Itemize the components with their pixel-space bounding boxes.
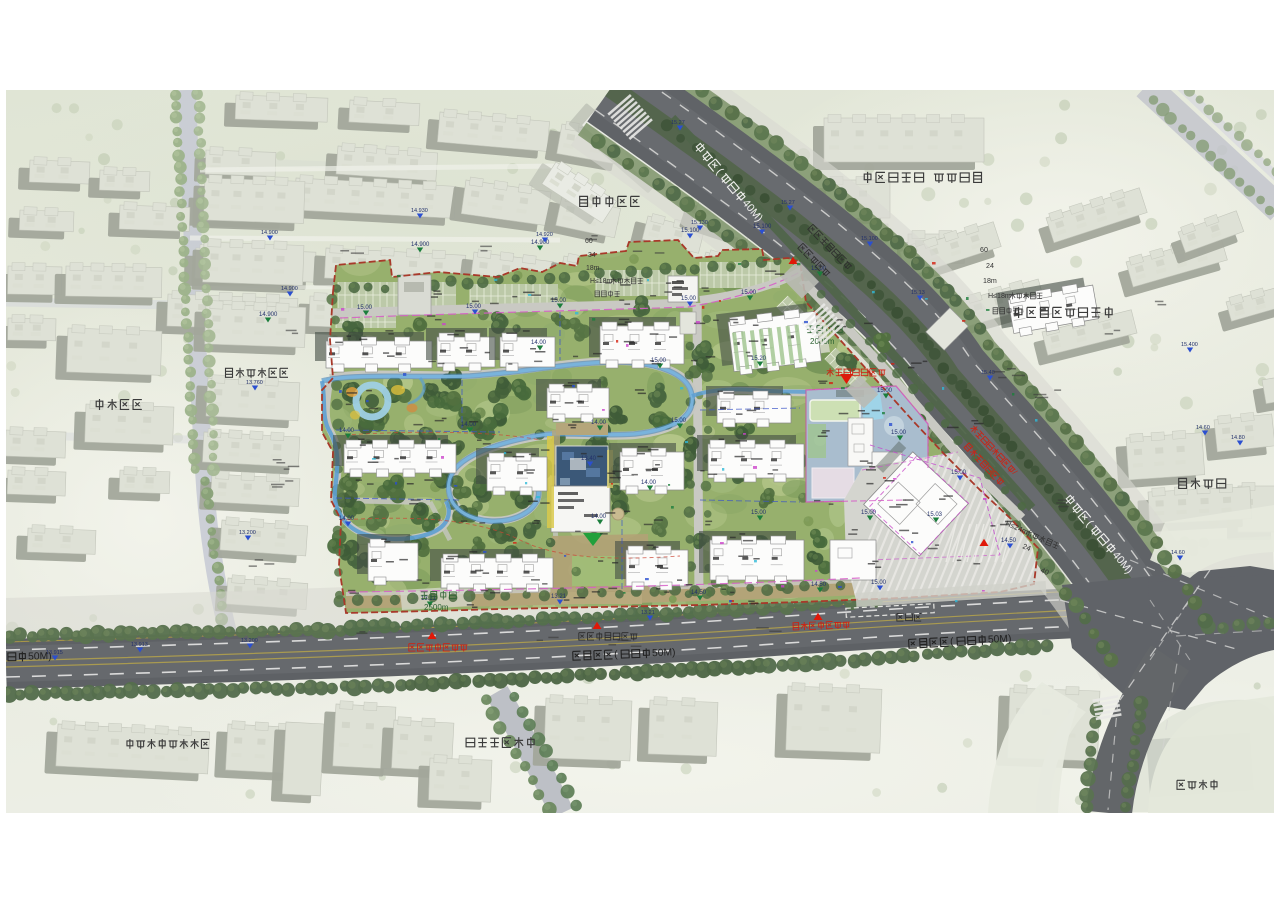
svg-text:24: 24 xyxy=(986,262,994,270)
svg-text:60: 60 xyxy=(585,238,593,245)
svg-text:15.00: 15.00 xyxy=(751,510,767,516)
svg-text:50M): 50M) xyxy=(652,647,676,659)
svg-text:14.900: 14.900 xyxy=(259,312,278,318)
svg-text:14.900: 14.900 xyxy=(281,286,298,292)
svg-text:14.900: 14.900 xyxy=(411,242,430,248)
svg-text:14.80: 14.80 xyxy=(1231,435,1245,441)
svg-text:15.100: 15.100 xyxy=(753,224,772,230)
svg-text:14.900: 14.900 xyxy=(531,240,550,246)
svg-text:15.27: 15.27 xyxy=(781,200,795,206)
svg-text:14.60: 14.60 xyxy=(1171,550,1185,556)
svg-text:H≤18m: H≤18m xyxy=(590,278,612,285)
svg-text:15.40: 15.40 xyxy=(981,370,995,376)
svg-text:15.00: 15.00 xyxy=(871,580,887,586)
svg-text:14.00: 14.00 xyxy=(641,480,657,486)
svg-text:14.00: 14.00 xyxy=(339,516,355,522)
svg-text:2500m: 2500m xyxy=(424,603,449,612)
svg-text:15.00: 15.00 xyxy=(891,430,907,436)
svg-text:50M): 50M) xyxy=(28,651,52,662)
svg-text:15.100: 15.100 xyxy=(681,228,700,234)
svg-text:15.00: 15.00 xyxy=(681,296,697,302)
svg-text:14.920: 14.920 xyxy=(536,232,553,238)
svg-text:13.760: 13.760 xyxy=(246,380,263,386)
svg-text:34: 34 xyxy=(588,252,596,259)
svg-text:13.40: 13.40 xyxy=(581,456,597,462)
svg-text:15.00: 15.00 xyxy=(951,470,967,476)
svg-text:15.00: 15.00 xyxy=(877,388,893,394)
svg-text:60: 60 xyxy=(980,246,988,254)
svg-text:14.00: 14.00 xyxy=(591,514,607,520)
svg-text:14.60: 14.60 xyxy=(1196,425,1210,431)
svg-text:15.130: 15.130 xyxy=(691,220,708,226)
svg-text:15.400: 15.400 xyxy=(1181,342,1198,348)
svg-text:15.00: 15.00 xyxy=(357,305,373,311)
svg-text:15.27: 15.27 xyxy=(671,120,685,126)
svg-text:15.03: 15.03 xyxy=(927,512,943,518)
svg-text:50M): 50M) xyxy=(988,634,1012,646)
svg-text:14.50: 14.50 xyxy=(811,582,827,588)
svg-text:14.00: 14.00 xyxy=(531,340,547,346)
svg-text:15.13: 15.13 xyxy=(911,290,925,296)
svg-text:18m: 18m xyxy=(983,277,997,285)
svg-text:15.00: 15.00 xyxy=(671,418,687,424)
svg-text:14.930: 14.930 xyxy=(411,208,428,214)
svg-text:15.00: 15.00 xyxy=(466,304,482,310)
svg-text:14.50: 14.50 xyxy=(1001,538,1017,544)
svg-text:18m: 18m xyxy=(586,265,600,272)
svg-text:14.00: 14.00 xyxy=(339,428,355,434)
svg-text:14.00: 14.00 xyxy=(591,420,607,426)
svg-text:15.00: 15.00 xyxy=(741,290,757,296)
svg-text:H≤18m: H≤18m xyxy=(988,292,1011,300)
svg-text:14.00: 14.00 xyxy=(461,422,477,428)
svg-text:13.21: 13.21 xyxy=(551,594,567,600)
svg-text:15.20: 15.20 xyxy=(751,356,767,362)
svg-text:15.100: 15.100 xyxy=(861,236,878,242)
svg-text:14.50: 14.50 xyxy=(691,590,707,596)
svg-text:13.913: 13.913 xyxy=(131,642,148,648)
svg-text:13.21: 13.21 xyxy=(641,610,655,616)
svg-text:13.200: 13.200 xyxy=(241,638,258,644)
svg-text:14.900: 14.900 xyxy=(261,230,278,236)
svg-text:15.00: 15.00 xyxy=(861,510,877,516)
svg-text:13.200: 13.200 xyxy=(239,530,256,536)
